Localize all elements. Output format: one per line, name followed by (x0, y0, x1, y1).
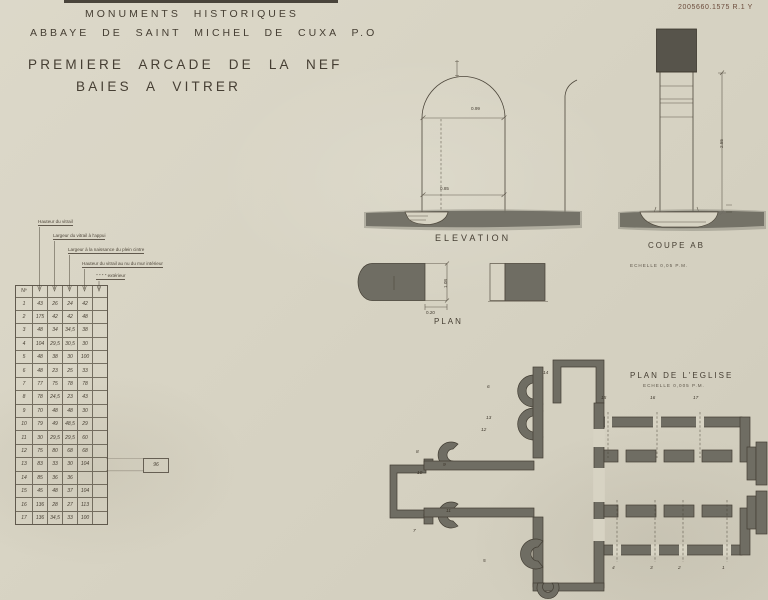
bay-number-chapel: 10 (417, 471, 422, 476)
bay-number-top: 17 (693, 396, 698, 401)
coupe-ab-drawing (618, 29, 766, 231)
plan-dim-reveal: 0.20 (426, 310, 435, 315)
elevation-label: ELEVATION (435, 233, 511, 243)
bay-number-top: 16 (650, 396, 655, 401)
elevation-drawing (364, 60, 582, 231)
elevation-dim-bottom: 0.85 (440, 186, 449, 191)
bay-number-chapel: 12 (481, 428, 486, 433)
bay-number-chapel: 13 (486, 416, 491, 421)
bay-number-chapel: 11 (446, 509, 451, 514)
church-plan-drawing (390, 360, 767, 599)
bay-number-bottom: 2 (678, 566, 681, 571)
bay-number-top: 15 (601, 396, 606, 401)
bay-number-bottom: 4 (612, 566, 615, 571)
bay-number-chapel: 8 (416, 450, 419, 455)
drawing-layer (0, 0, 768, 600)
bay-number-chapel: 6 (487, 385, 490, 390)
coupe-ab-label: COUPE AB (648, 241, 705, 250)
bay-number-bottom: 3 (650, 566, 653, 571)
elevation-dim-top: 0.99 (471, 106, 480, 111)
bay-number-bottom: 1 (722, 566, 725, 571)
bay-number-chapel: 9 (443, 463, 446, 468)
bay-number-chapel: 5 (483, 559, 486, 564)
plan-dim-depth: 1.08 (443, 279, 448, 288)
church-plan-scale-note: ECHELLE 0,005 P.M. (643, 383, 705, 388)
drawing-sheet: 2005660.1575 R.1 Y MONUMENTS HISTORIQUES… (0, 0, 768, 600)
window-plan-drawing (358, 262, 548, 311)
coupe-scale-note: ECHELLE 0,05 P.M. (630, 263, 688, 268)
annotation-leader-lines (38, 227, 143, 471)
bay-number-chapel: 14 (543, 371, 548, 376)
bay-number-chapel: 7 (413, 529, 416, 534)
coupe-dim-height: 2.55 (719, 139, 724, 148)
church-plan-title: PLAN DE L'EGLISE (630, 371, 733, 380)
plan-label: PLAN (434, 317, 463, 326)
